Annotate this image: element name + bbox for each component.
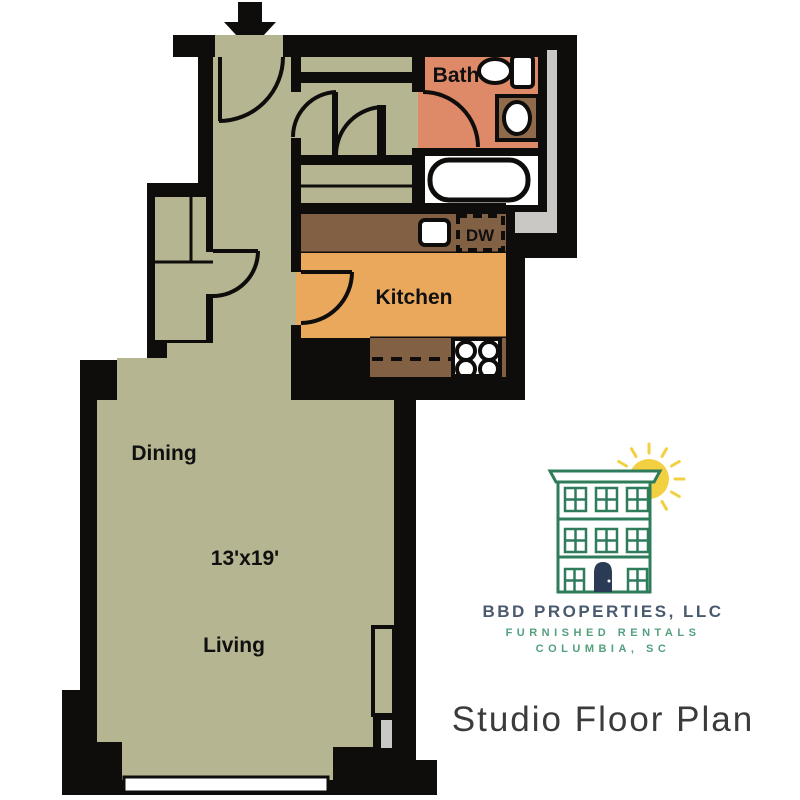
left-closet-wall-top	[206, 197, 213, 252]
hall-wall-lower	[291, 138, 301, 203]
shaft-vertical	[547, 50, 557, 233]
company-name: BBD PROPERTIES, LLC	[482, 602, 723, 621]
bath-door-opening-bath	[418, 92, 425, 148]
kitchen-label: Kitchen	[375, 286, 452, 309]
bath-sink	[504, 102, 530, 134]
company-logo: BBD PROPERTIES, LLC FURNISHED RENTALS CO…	[482, 444, 723, 655]
kitchen-door-opening-kitchen	[296, 272, 301, 325]
bathtub	[430, 160, 528, 200]
dishwasher-label: DW	[466, 226, 495, 245]
top-closet-wall	[298, 72, 412, 83]
left-closet-floor	[155, 197, 213, 340]
studio-floor-plan-page: Bath DW Kitchen Dining 13'x19' Living	[0, 0, 800, 800]
shaft-horizontal	[515, 212, 557, 233]
kitchen-sink	[420, 220, 449, 245]
plan-caption: Studio Floor Plan	[452, 700, 754, 739]
closet-band-wall	[291, 155, 412, 165]
entry-opening	[215, 35, 283, 58]
kitchen-top-wall	[291, 203, 506, 214]
toilet-bowl	[479, 59, 511, 83]
radiator-niche	[373, 627, 394, 715]
kitchen-door-opening-hall	[291, 272, 296, 325]
bath-shaft-wall	[538, 57, 547, 212]
left-closet-wall-bottom	[206, 294, 213, 340]
dimensions-label: 13'x19'	[211, 547, 279, 570]
toilet-tank	[512, 56, 533, 87]
bottom-window	[124, 777, 328, 792]
living-label: Living	[203, 634, 265, 657]
dining-label: Dining	[131, 442, 196, 465]
floor-plan-canvas: Bath DW Kitchen Dining 13'x19' Living	[0, 0, 800, 800]
side-window	[381, 720, 392, 748]
company-location: COLUMBIA, SC	[536, 643, 671, 655]
building-icon	[550, 471, 660, 592]
bath-door-opening-hall	[412, 92, 418, 148]
front-door-icon	[594, 562, 612, 592]
company-tagline: FURNISHED RENTALS	[506, 627, 701, 639]
living-dining-floor	[97, 57, 412, 780]
hall-wall-upper	[291, 57, 301, 92]
bath-label: Bath	[433, 64, 480, 87]
